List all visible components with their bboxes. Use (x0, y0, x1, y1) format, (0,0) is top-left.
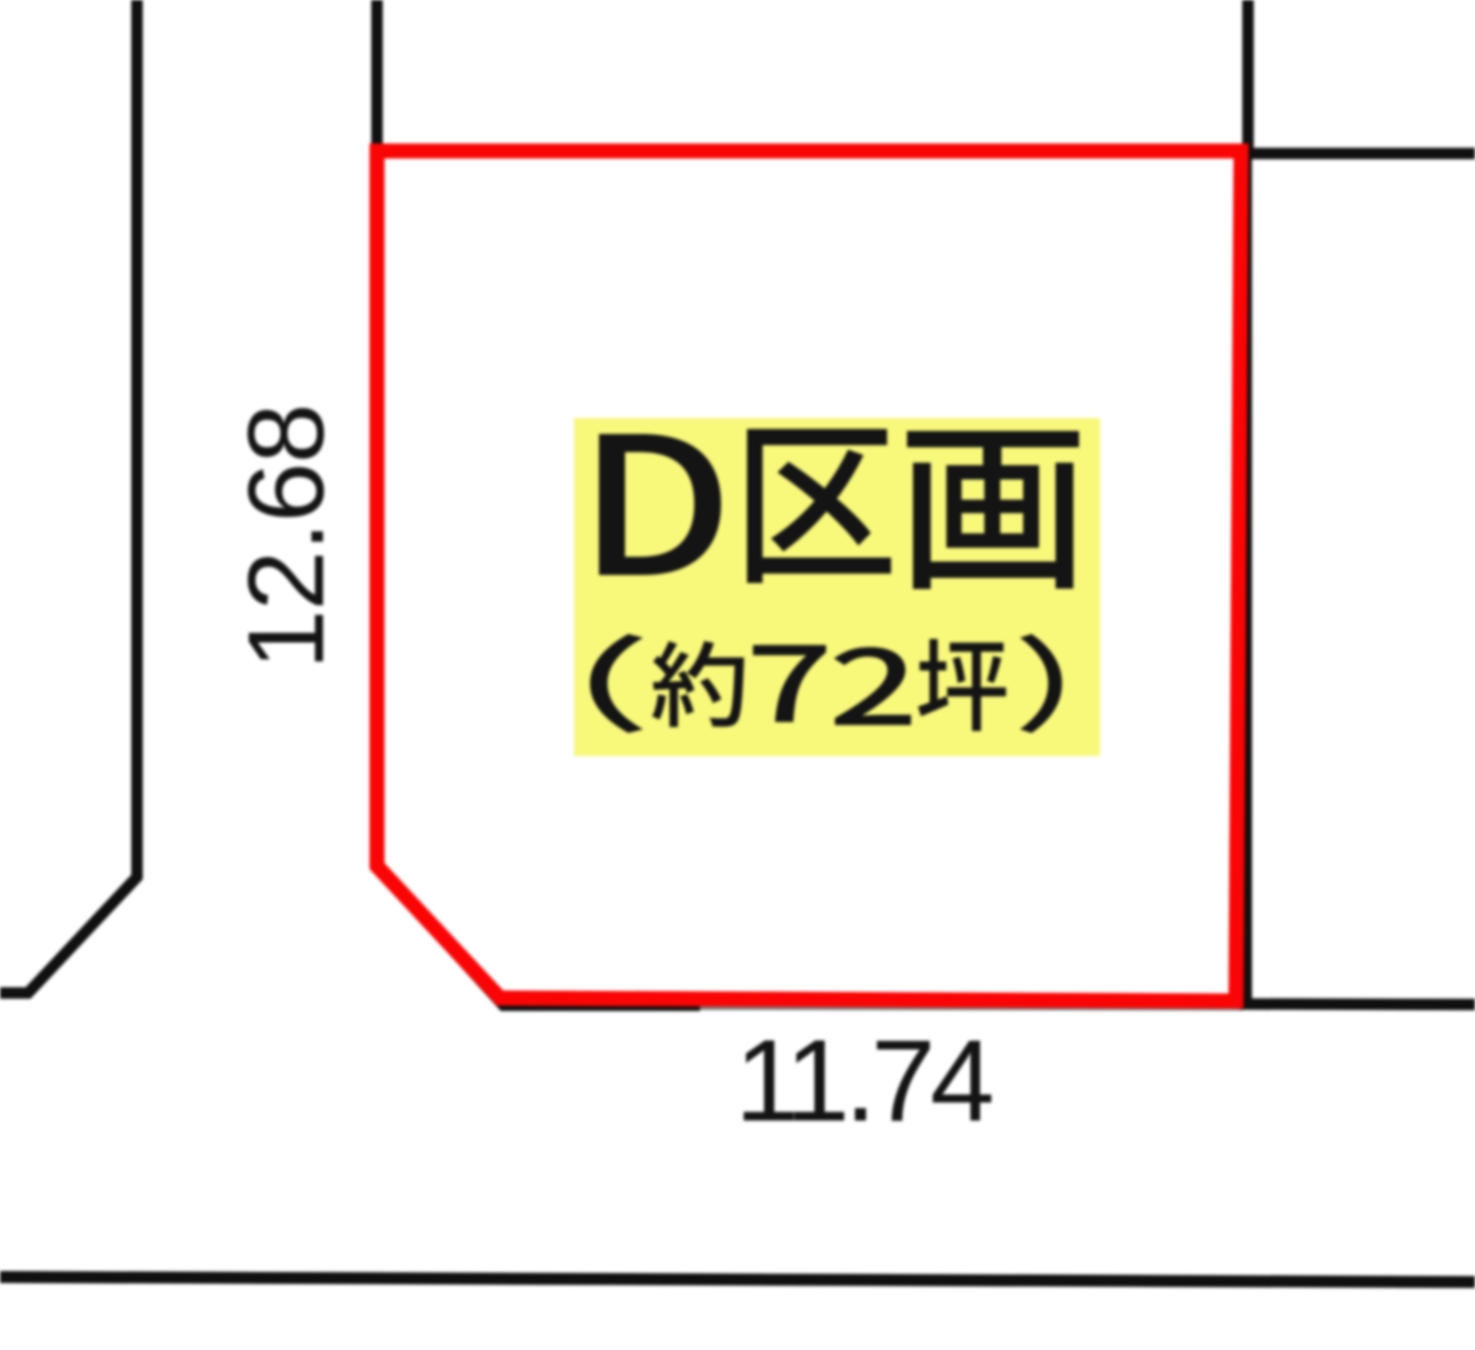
svg-text:11.74: 11.74 (735, 1016, 992, 1146)
svg-text:12.68: 12.68 (225, 404, 346, 669)
